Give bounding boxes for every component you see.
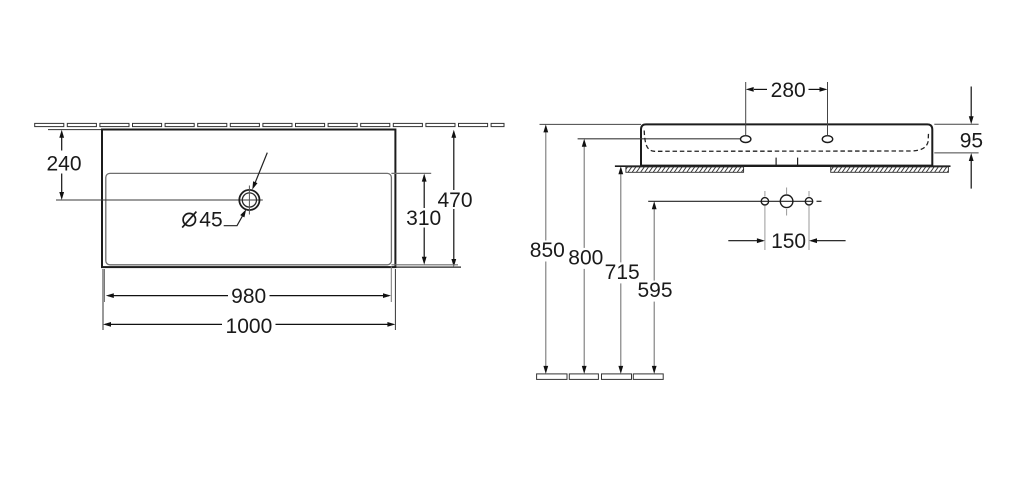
svg-text:240: 240 (46, 153, 81, 176)
svg-text:470: 470 (437, 189, 472, 212)
svg-text:95: 95 (960, 129, 983, 152)
svg-text:150: 150 (771, 230, 806, 253)
svg-text:715: 715 (605, 261, 640, 284)
svg-text:800: 800 (568, 247, 603, 270)
svg-text:310: 310 (406, 207, 441, 230)
svg-text:850: 850 (530, 239, 565, 262)
svg-text:1000: 1000 (226, 315, 273, 338)
svg-text:595: 595 (637, 279, 672, 302)
svg-text:45: 45 (199, 209, 222, 232)
svg-text:280: 280 (771, 79, 806, 102)
svg-text:980: 980 (231, 285, 266, 308)
